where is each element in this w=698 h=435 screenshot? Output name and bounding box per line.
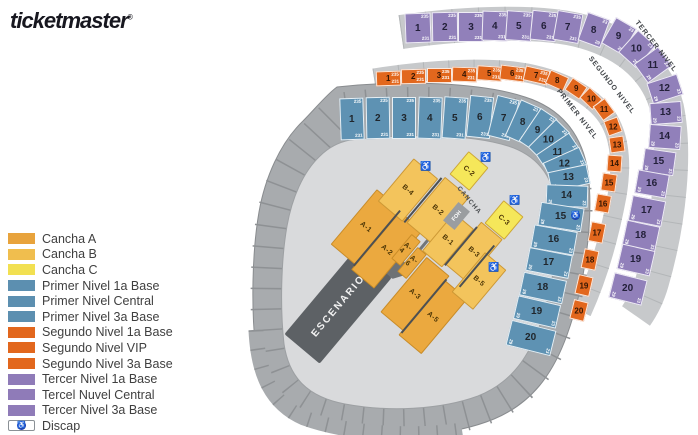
row-number: 23 [674, 143, 679, 148]
section-number: 14 [610, 159, 619, 168]
section-number: 7 [565, 22, 571, 33]
section-number: 17 [543, 258, 554, 269]
row-number: 235 [467, 69, 475, 74]
row-number: 235 [523, 13, 531, 18]
cancha-section-label: C-3 [497, 213, 511, 227]
row-number: 23 [602, 19, 608, 25]
cancha-section-label: C-2 [462, 164, 476, 178]
row-number: 231 [569, 36, 577, 42]
cancha-section-label: B-5 [472, 274, 486, 288]
row-number: 23 [562, 271, 567, 277]
row-number: 231 [449, 35, 457, 40]
section-segundo-5[interactable]: 5235231 [476, 65, 502, 82]
cancha-section-label: A-1 [359, 220, 373, 234]
section-number: 13 [613, 140, 622, 149]
section-number: 14 [659, 132, 670, 143]
row-number: 235 [539, 70, 547, 76]
row-number: 231 [355, 133, 363, 138]
row-number: 23 [660, 191, 665, 197]
section-number: 5 [452, 113, 458, 124]
section-number: 5 [487, 68, 491, 77]
section-number: 6 [477, 112, 483, 123]
section-number: 3 [401, 113, 407, 124]
section-number: 17 [641, 206, 652, 217]
section-segundo-3[interactable]: 3235231 [427, 68, 452, 83]
section-number: 9 [574, 83, 578, 92]
section-number: 8 [591, 25, 597, 36]
section-number: 8 [555, 75, 559, 84]
row-number: 235 [442, 70, 450, 75]
row-number: 235 [515, 68, 523, 73]
row-number: 235 [448, 14, 456, 19]
section-number: 15 [605, 178, 614, 187]
row-number: 23 [568, 248, 573, 254]
section-segundo-13[interactable]: 13 [608, 135, 625, 153]
cancha-section-label: A-5 [426, 310, 440, 324]
row-number: 29 [521, 289, 526, 295]
section-primer-4[interactable]: 4235231 [417, 97, 442, 140]
row-number: 235 [433, 99, 441, 104]
discap-icon: ♿ [571, 211, 580, 220]
row-number: 23 [667, 168, 672, 174]
section-number: 19 [630, 255, 641, 266]
section-primer-3[interactable]: 3235231 [392, 97, 416, 139]
section-number: 14 [561, 191, 572, 202]
section-number: 4 [492, 21, 498, 32]
row-number: 29 [527, 264, 532, 270]
row-number: 23 [655, 219, 660, 225]
row-number: 231 [416, 77, 424, 82]
section-number: 1 [349, 114, 355, 125]
wheelchair-icon: ♿ [488, 263, 499, 272]
section-number: 10 [587, 94, 596, 103]
section-number: 2 [442, 22, 448, 33]
row-number: 29 [650, 141, 655, 146]
section-number: 9 [616, 31, 622, 42]
row-number: 23 [581, 200, 586, 205]
wheelchair-icon: ♿ [509, 196, 520, 205]
section-number: 13 [563, 173, 574, 184]
section-number: 20 [525, 333, 536, 344]
seating-map: ESCENARIO FOH PRIMER NIVEL SEGUNDO NIVEL… [0, 0, 698, 435]
row-number: 235 [492, 68, 500, 73]
row-number: 231 [442, 76, 450, 81]
section-number: 19 [580, 281, 589, 290]
section-tercer-1[interactable]: 1235231 [404, 13, 431, 44]
row-number: 23 [556, 296, 561, 302]
section-number: 12 [659, 84, 670, 95]
ticketmaster-seatmap-page: ticketmaster® Cancha ACancha BCancha CPr… [0, 0, 698, 435]
row-number: 235 [458, 99, 466, 104]
section-number: 7 [500, 113, 506, 124]
section-number: 11 [648, 59, 659, 70]
section-segundo-14[interactable]: 14 [606, 154, 622, 172]
section-number: 6 [541, 21, 547, 32]
row-number: 29 [594, 40, 600, 46]
row-number: 235 [421, 15, 429, 20]
row-number: 23 [544, 348, 550, 354]
row-number: 23 [550, 320, 556, 326]
row-number: 23 [675, 88, 681, 94]
section-tercer-2[interactable]: 2235231 [432, 12, 459, 42]
section-number: 1 [415, 23, 421, 34]
row-number: 235 [499, 13, 507, 18]
section-primer-2[interactable]: 2235231 [366, 97, 391, 139]
cancha-section-label: A-2 [380, 243, 394, 257]
section-number: 18 [586, 255, 595, 264]
section-number: 19 [531, 307, 542, 318]
row-number: 231 [432, 133, 440, 138]
section-number: 3 [437, 71, 441, 80]
row-number: 235 [548, 13, 556, 18]
cancha-section-label: A-3 [408, 287, 422, 301]
row-number: 231 [467, 75, 475, 80]
row-number: 29 [645, 74, 652, 81]
row-number: 231 [422, 36, 430, 41]
section-segundo-4[interactable]: 4235231 [451, 66, 477, 82]
section-number: 17 [593, 228, 602, 237]
row-number: 235 [573, 15, 581, 21]
row-number: 235 [354, 100, 362, 105]
row-number: 235 [508, 100, 516, 106]
section-segundo-16[interactable]: 16 [594, 193, 612, 213]
section-primer-5[interactable]: 5235231 [442, 96, 469, 140]
section-number: 6 [510, 68, 514, 77]
row-number: 235 [416, 70, 424, 75]
section-number: 16 [599, 199, 608, 208]
section-tercer-13[interactable]: 132329 [649, 101, 682, 125]
section-number: 11 [600, 105, 608, 114]
row-number: 231 [381, 132, 389, 137]
row-number: 23 [575, 224, 580, 230]
section-segundo-6[interactable]: 6235231 [499, 64, 526, 82]
row-number: 29 [653, 96, 659, 102]
section-number: 5 [516, 21, 522, 32]
row-number: 23 [628, 27, 635, 33]
row-number: 231 [456, 133, 464, 138]
row-number: 29 [515, 312, 521, 318]
section-number: 2 [411, 72, 415, 81]
row-number: 29 [611, 291, 617, 297]
row-number: 231 [522, 35, 530, 40]
row-number: 235 [391, 72, 399, 77]
row-number: 231 [514, 74, 522, 79]
row-number: 231 [406, 133, 414, 138]
row-number: 23 [636, 297, 642, 303]
section-number: 15 [653, 157, 664, 168]
cancha-section-label: B-4 [401, 183, 415, 197]
row-number: 231 [391, 79, 399, 84]
section-number: 4 [427, 113, 433, 124]
section-number: 13 [660, 108, 671, 119]
section-number: 20 [622, 284, 633, 295]
section-number: 16 [548, 235, 559, 246]
section-number: 18 [537, 283, 548, 294]
row-number: 29 [630, 214, 635, 220]
section-number: 8 [520, 117, 526, 128]
section-number: 15 [555, 212, 566, 223]
row-number: 235 [474, 14, 482, 19]
cancha-section-label: B-1 [441, 233, 455, 247]
section-number: 10 [631, 44, 642, 55]
section-segundo-2[interactable]: 2235231 [400, 68, 425, 83]
section-number: 2 [375, 113, 381, 124]
row-number: 23 [583, 177, 588, 183]
section-primer-1[interactable]: 1235231 [339, 98, 364, 141]
section-number: 20 [575, 306, 584, 315]
cancha-section-label: B-3 [467, 245, 481, 259]
section-number: 3 [468, 22, 474, 33]
section-tercer-14[interactable]: 142329 [648, 124, 682, 150]
section-number: 4 [462, 69, 466, 78]
row-number: 235 [484, 98, 492, 103]
row-number: 29 [540, 219, 545, 225]
row-number: 23 [676, 116, 681, 121]
section-number: 1 [386, 74, 390, 83]
section-segundo-1[interactable]: 1235231 [375, 70, 401, 86]
section-number: 18 [635, 231, 646, 242]
wheelchair-icon: ♿ [420, 162, 431, 171]
foh-label: FOH [450, 210, 462, 223]
row-number: 29 [533, 241, 538, 247]
section-number: 7 [534, 70, 538, 79]
row-number: 235 [380, 99, 388, 104]
row-number: 29 [652, 118, 657, 123]
row-number: 29 [636, 186, 641, 192]
section-tercer-3[interactable]: 3235231 [458, 12, 484, 42]
row-number: 23 [644, 268, 650, 274]
section-number: 12 [609, 122, 618, 131]
row-number: 29 [619, 262, 625, 268]
row-number: 29 [508, 339, 514, 345]
wheelchair-icon: ♿ [480, 153, 491, 162]
section-segundo-15[interactable]: 15 [600, 172, 617, 192]
section-number: 16 [646, 179, 657, 190]
row-number: 235 [406, 99, 414, 104]
cancha-section-label: B-2 [431, 203, 445, 217]
